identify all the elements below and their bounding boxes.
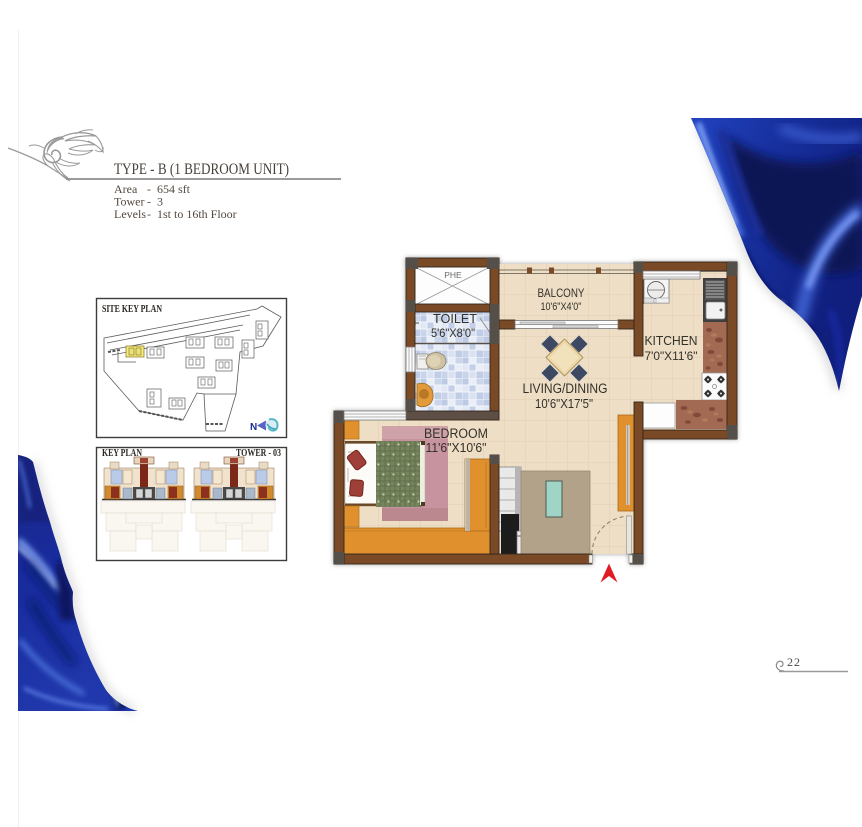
svg-text:KITCHEN: KITCHEN bbox=[645, 334, 698, 348]
svg-text:BEDROOM: BEDROOM bbox=[424, 426, 488, 441]
svg-text:11'6"X10'6": 11'6"X10'6" bbox=[426, 441, 487, 455]
svg-text:LIVING/DINING: LIVING/DINING bbox=[523, 381, 608, 396]
svg-text:TOILET: TOILET bbox=[433, 311, 477, 326]
svg-text:BALCONY: BALCONY bbox=[538, 288, 585, 300]
svg-text:PHE: PHE bbox=[444, 270, 462, 280]
svg-text:10'6"X17'5": 10'6"X17'5" bbox=[535, 397, 593, 411]
svg-text:7'0"X11'6": 7'0"X11'6" bbox=[645, 351, 698, 363]
svg-text:SITE KEY PLAN: SITE KEY PLAN bbox=[102, 303, 162, 315]
svg-text:N: N bbox=[250, 422, 257, 433]
svg-text:Levels-1st to 16th Floor: Levels-1st to 16th Floor bbox=[114, 207, 237, 221]
svg-text:TYPE - B (1 BEDROOM UNIT): TYPE - B (1 BEDROOM UNIT) bbox=[114, 161, 289, 178]
svg-text:5'6"X8'0": 5'6"X8'0" bbox=[431, 326, 475, 340]
svg-text:22: 22 bbox=[787, 655, 801, 669]
svg-text:10'6"X4'0": 10'6"X4'0" bbox=[541, 301, 582, 313]
